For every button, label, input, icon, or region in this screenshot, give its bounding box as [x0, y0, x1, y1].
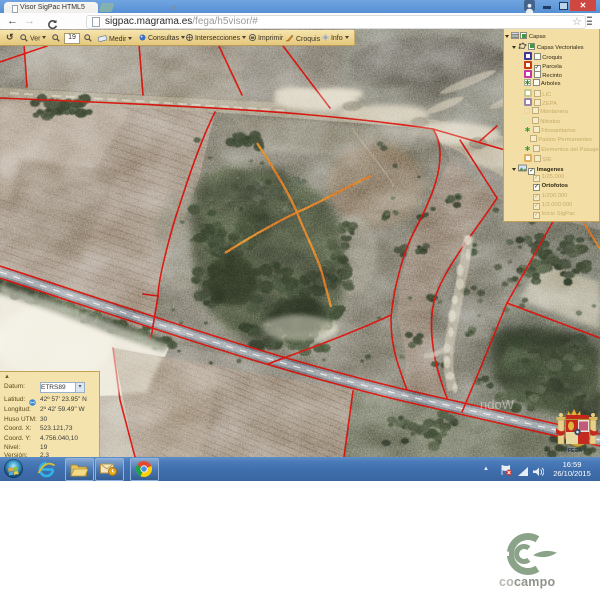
- svg-text:FEGA: FEGA: [568, 448, 582, 454]
- svg-text:cocampo: cocampo: [499, 575, 555, 589]
